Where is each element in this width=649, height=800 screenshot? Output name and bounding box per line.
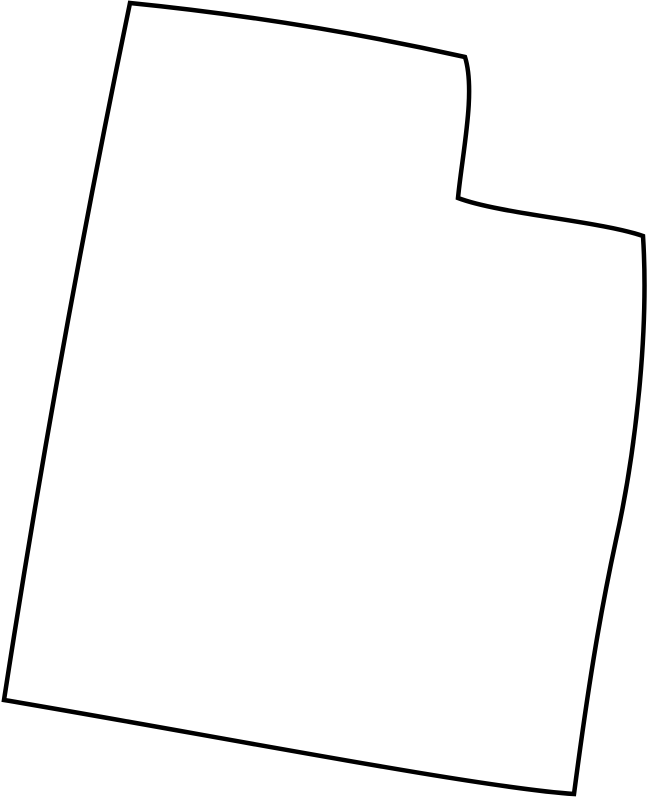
state-border-path	[4, 3, 644, 794]
utah-state-outline-map	[0, 0, 649, 800]
map-canvas	[0, 0, 649, 800]
